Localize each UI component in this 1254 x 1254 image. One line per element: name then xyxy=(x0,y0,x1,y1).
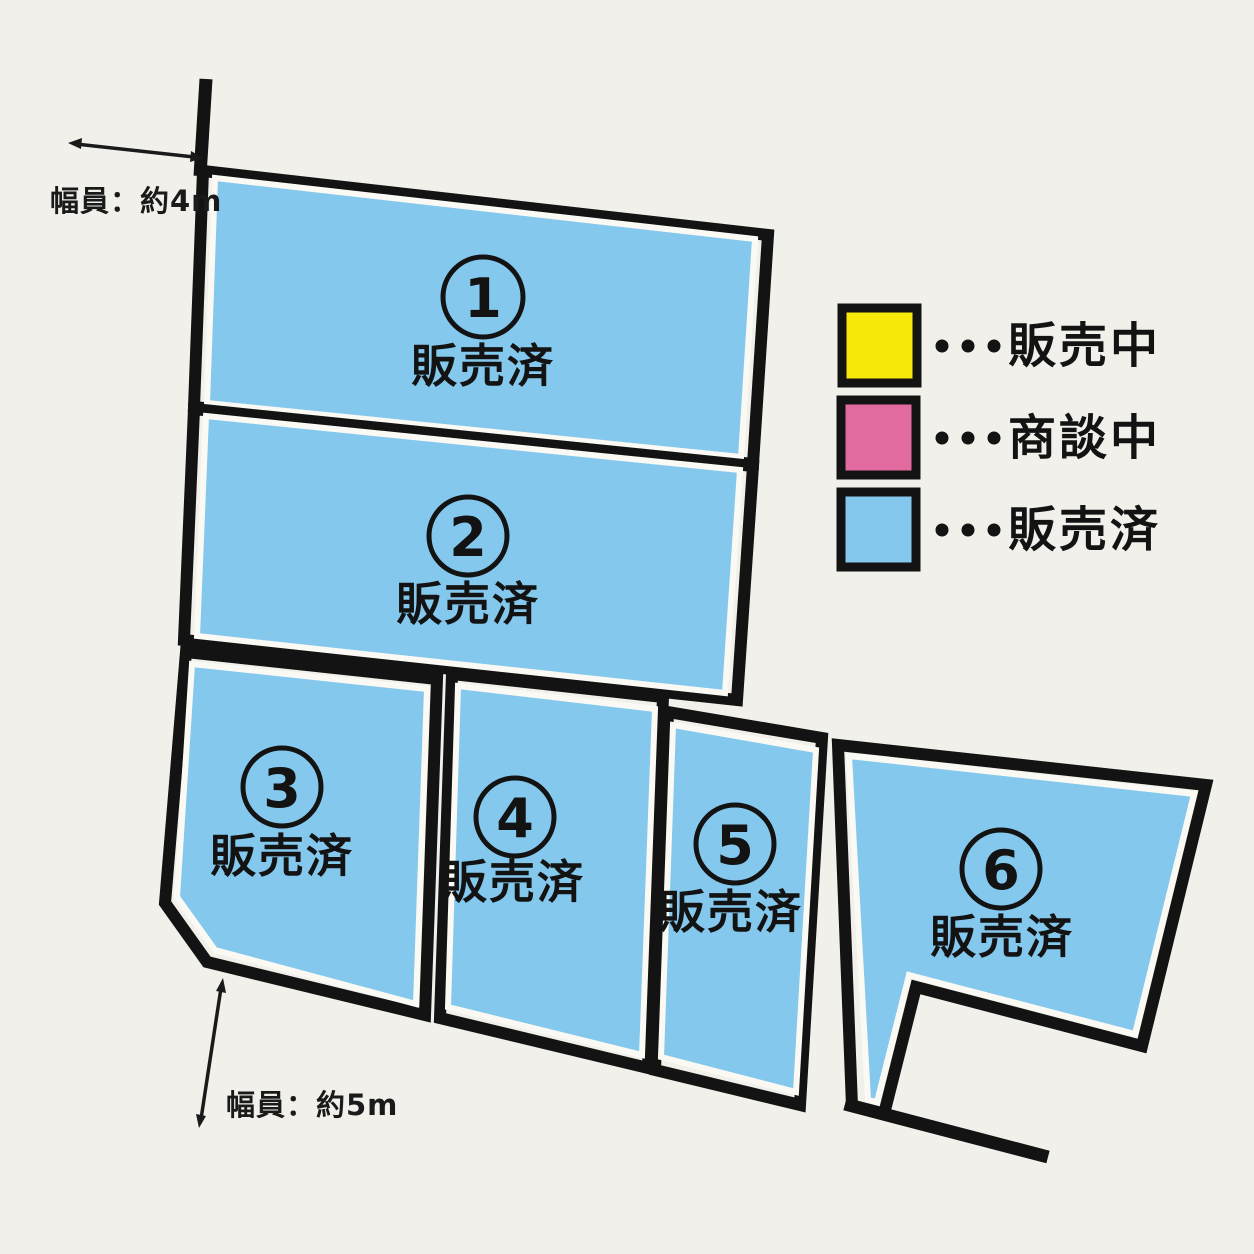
lot-5-status: 販売済 xyxy=(659,885,803,939)
legend-label-sold: 販売済 xyxy=(1008,502,1161,558)
lot-4: 4 販売済 xyxy=(440,674,663,1068)
lot-5: 5 販売済 xyxy=(655,712,822,1105)
legend-label-on-sale: 販売中 xyxy=(1008,318,1161,374)
legend-swatch-negotiating-icon xyxy=(841,400,916,475)
lot-1-status: 販売済 xyxy=(411,339,555,393)
lot-5-number: 5 xyxy=(716,814,754,877)
legend-dots-icon xyxy=(936,340,1001,353)
lot-3-status: 販売済 xyxy=(210,829,354,883)
legend-swatch-on-sale-icon xyxy=(842,308,917,383)
lot-1-number: 1 xyxy=(464,267,502,330)
lot-2-number: 2 xyxy=(449,506,487,569)
road-width-bottom-label: 幅員：約5m xyxy=(226,1088,398,1122)
road-line-top xyxy=(200,79,206,176)
road-width-top-label: 幅員：約4m xyxy=(50,184,222,218)
lot-6-number: 6 xyxy=(982,839,1020,902)
lot-6-status: 販売済 xyxy=(930,910,1074,964)
legend-swatch-sold-icon xyxy=(841,492,916,567)
lot-2-status: 販売済 xyxy=(396,577,540,631)
legend-label-negotiating: 商談中 xyxy=(1008,410,1161,466)
lot-3: 3 販売済 xyxy=(165,652,437,1015)
lot-map-page: 1 販売済 2 販売済 3 販売済 4 販売済 5 販売済 6 xyxy=(0,0,1254,1254)
lot-map-canvas: 1 販売済 2 販売済 3 販売済 4 販売済 5 販売済 6 xyxy=(0,0,1254,1254)
lot-4-number: 4 xyxy=(496,787,534,850)
lot-4-status: 販売済 xyxy=(441,855,585,909)
legend-dots-icon xyxy=(936,524,1001,537)
lot-3-number: 3 xyxy=(263,757,301,820)
legend-dots-icon xyxy=(936,432,1001,445)
